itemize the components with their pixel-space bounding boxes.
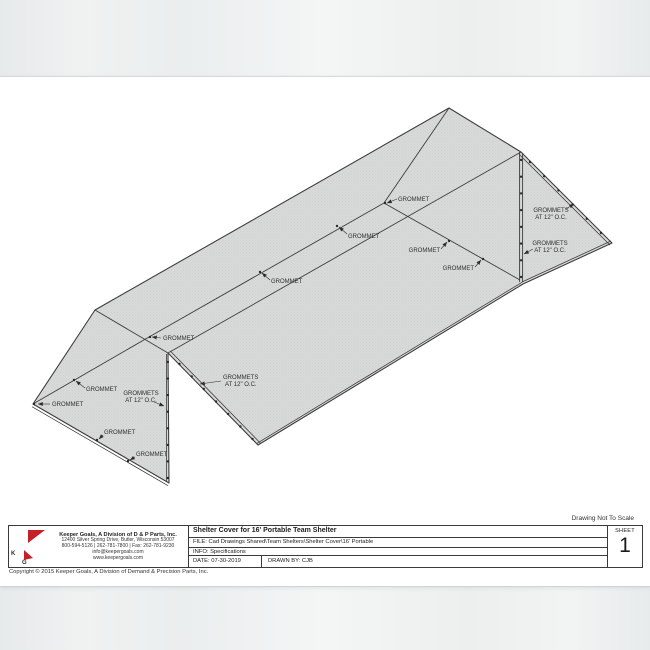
grommets-oc-label: AT 12" O.C. <box>125 398 157 404</box>
grommet-label: GROMMET <box>163 336 195 342</box>
drawing-title: Shelter Cover for 16' Portable Team Shel… <box>189 526 607 538</box>
grommet-label: GROMMET <box>348 234 380 240</box>
logo-letter-g: G <box>22 560 27 566</box>
grommet-label: GROMMET <box>443 266 475 272</box>
grommets-oc-label: AT 12" O.C. <box>225 382 257 388</box>
not-to-scale-note: Drawing Not To Scale <box>572 515 634 522</box>
cover-body <box>33 108 612 483</box>
date-field: DATE: 07-30-2019 <box>189 556 262 567</box>
grommets-oc-label: GROMMETS <box>223 375 258 381</box>
copyright-line: Copyright © 2015 Keeper Goals, A Divisio… <box>9 569 208 575</box>
grommet-label: GROMMET <box>398 197 430 203</box>
logo-letter-k: K <box>11 551 16 557</box>
info-line: INFO: Specifications <box>189 548 607 556</box>
page-background: { "page": { "note": "Drawing Not To Scal… <box>0 0 650 650</box>
grommet-label: GROMMET <box>136 452 168 458</box>
grommet-label: GROMMET <box>104 430 136 436</box>
logo-red-wedge-bottom <box>24 550 33 560</box>
file-path: FILE: Cad Drawings Shared\Team Shelters\… <box>189 538 607 548</box>
title-block-company-cell: G K Keeper Goals, A Division of D & P Pa… <box>9 526 189 567</box>
grommet-label: GROMMET <box>52 402 84 408</box>
sheet-cell: SHEET 1 <box>608 526 642 567</box>
grommet-label: GROMMET <box>271 279 303 285</box>
grommets-oc-label: AT 12" O.C. <box>534 248 566 254</box>
grommets-oc-label: GROMMETS <box>533 208 568 214</box>
title-block-info-cell: Shelter Cover for 16' Portable Team Shel… <box>189 526 608 567</box>
grommets-oc-label: GROMMETS <box>123 391 158 397</box>
company-website: www.keepergoals.com <box>48 556 188 562</box>
grommet-label: GROMMET <box>409 248 441 254</box>
sheet-number: 1 <box>619 535 631 556</box>
logo-red-wedge-top <box>28 530 45 543</box>
grommets-oc-label: GROMMETS <box>532 241 567 247</box>
grommet-label: GROMMET <box>86 387 118 393</box>
grommets-oc-label: AT 12" O.C. <box>535 215 567 221</box>
title-block: G K Keeper Goals, A Division of D & P Pa… <box>8 525 643 568</box>
drawn-by-field: DRAWN BY: CJB <box>262 556 607 567</box>
keeper-goals-logo: G K <box>11 527 48 566</box>
